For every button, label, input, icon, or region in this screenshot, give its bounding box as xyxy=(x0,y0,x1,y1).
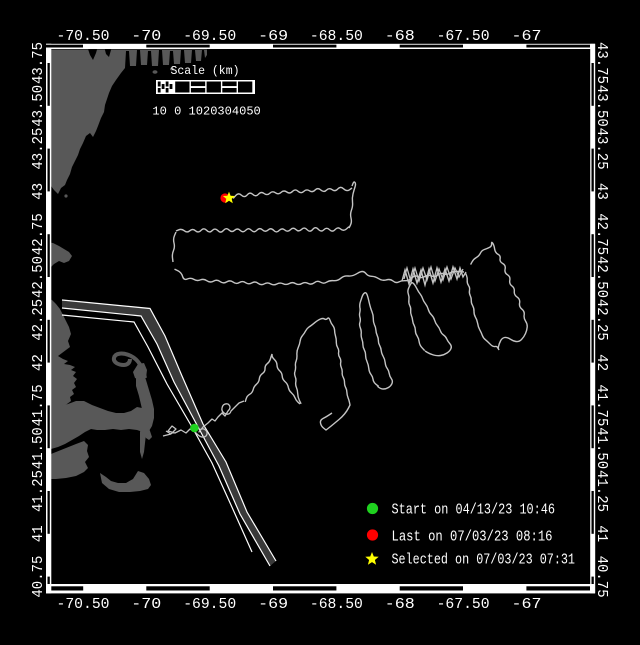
svg-text:43.75: 43.75 xyxy=(30,42,47,84)
svg-text:-68.50: -68.50 xyxy=(310,28,363,45)
svg-text:43: 43 xyxy=(30,183,47,200)
svg-text:43.25: 43.25 xyxy=(593,128,610,170)
svg-text:40.75: 40.75 xyxy=(593,556,610,598)
svg-text:10 0 1020304050: 10 0 1020304050 xyxy=(152,105,260,119)
svg-text:41: 41 xyxy=(30,525,47,542)
svg-text:-70: -70 xyxy=(131,596,161,613)
svg-text:42.75: 42.75 xyxy=(30,213,47,255)
svg-text:41: 41 xyxy=(593,525,610,542)
svg-text:42.50: 42.50 xyxy=(593,256,610,298)
svg-text:41.25: 41.25 xyxy=(30,470,47,512)
svg-text:Selected on 07/03/23 07:31: Selected on 07/03/23 07:31 xyxy=(392,552,576,569)
svg-text:41.50: 41.50 xyxy=(30,427,47,469)
svg-text:-69: -69 xyxy=(258,596,288,613)
svg-text:-70.50: -70.50 xyxy=(57,596,110,613)
svg-text:-67.50: -67.50 xyxy=(437,28,490,45)
svg-text:-67: -67 xyxy=(512,596,542,613)
svg-text:-69: -69 xyxy=(258,28,288,45)
svg-text:-69.50: -69.50 xyxy=(183,596,236,613)
svg-text:-68.50: -68.50 xyxy=(310,596,363,613)
svg-text:-67: -67 xyxy=(512,28,542,45)
svg-text:42.25: 42.25 xyxy=(30,299,47,341)
svg-text:40.75: 40.75 xyxy=(30,556,47,598)
svg-text:43.75: 43.75 xyxy=(593,42,610,84)
svg-text:Last on 07/03/23 08:16: Last on 07/03/23 08:16 xyxy=(392,529,553,546)
svg-text:43.50: 43.50 xyxy=(30,85,47,127)
svg-text:Start on 04/13/23 10:46: Start on 04/13/23 10:46 xyxy=(392,502,556,519)
svg-text:41.75: 41.75 xyxy=(30,384,47,426)
svg-text:-68: -68 xyxy=(385,596,415,613)
svg-text:41.75: 41.75 xyxy=(593,384,610,426)
svg-text:42.25: 42.25 xyxy=(593,299,610,341)
svg-text:42.75: 42.75 xyxy=(593,213,610,255)
svg-text:-70: -70 xyxy=(131,28,161,45)
svg-text:-68: -68 xyxy=(385,28,415,45)
svg-text:43.25: 43.25 xyxy=(30,128,47,170)
svg-text:42.50: 42.50 xyxy=(30,256,47,298)
svg-text:-69.50: -69.50 xyxy=(183,28,236,45)
svg-text:42: 42 xyxy=(30,354,47,371)
svg-text:43: 43 xyxy=(593,183,610,200)
svg-text:42: 42 xyxy=(593,354,610,371)
svg-text:43.50: 43.50 xyxy=(593,85,610,127)
svg-text:41.25: 41.25 xyxy=(593,470,610,512)
svg-text:Scale (km): Scale (km) xyxy=(171,64,240,78)
svg-text:-70.50: -70.50 xyxy=(57,28,110,45)
svg-text:41.50: 41.50 xyxy=(593,427,610,469)
svg-text:-67.50: -67.50 xyxy=(437,596,490,613)
